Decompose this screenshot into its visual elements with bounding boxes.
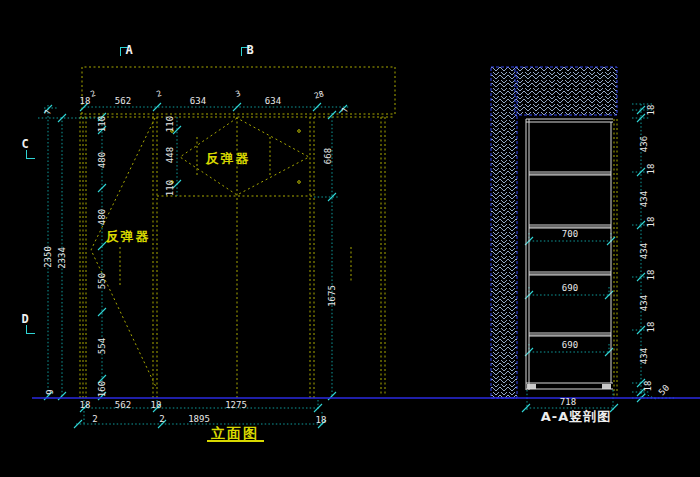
dim-label: 18: [151, 400, 162, 410]
dim-label: 18: [646, 105, 656, 116]
dim-label: 160: [97, 381, 107, 397]
cad-canvas: A B C D 18 2 562 2 634 3 634 28 7 7 2350…: [0, 0, 700, 477]
dim-label: 550: [97, 273, 107, 289]
dim-label: 18: [316, 415, 327, 425]
dim-label: 690: [562, 340, 578, 350]
dimension-lines: [38, 104, 674, 426]
dim-label: 1895: [188, 414, 210, 424]
dim-label: 18: [80, 96, 91, 106]
section-marker-a: A: [125, 43, 132, 57]
wall-hatch: [491, 67, 617, 398]
dim-label: 2334: [57, 247, 67, 269]
elevation-title: 立面图: [211, 425, 259, 443]
dim-label: 1275: [225, 400, 247, 410]
dim-label: 18: [646, 217, 656, 228]
dim-label: 448: [165, 147, 175, 163]
dim-label: 18: [80, 400, 91, 410]
dim-label: 2: [159, 414, 164, 424]
dim-label: 668: [323, 148, 333, 164]
elevation-frame-lines: [80, 67, 617, 441]
dim-label: 634: [265, 96, 281, 106]
dim-label: 480: [97, 152, 107, 168]
dim-label: 434: [639, 191, 649, 207]
section-marker-b: B: [246, 43, 253, 57]
dim-label: 18: [643, 381, 653, 392]
dim-label: 562: [115, 400, 131, 410]
dim-label: 2350: [43, 246, 53, 268]
rebounder-label: 反弹器: [106, 228, 151, 246]
section-title: A-A竖剖图: [541, 408, 612, 426]
dim-label: 110: [165, 116, 175, 132]
dim-label: 562: [115, 96, 131, 106]
dim-label: 18: [646, 322, 656, 333]
dim-label: 436: [639, 136, 649, 152]
rebounder-label: 反弹器: [206, 150, 251, 168]
dim-label: 2: [92, 414, 97, 424]
marker-bracket-c: [26, 150, 35, 159]
dim-label: 110: [97, 116, 107, 132]
dim-label: 18: [646, 270, 656, 281]
dim-label: 554: [97, 338, 107, 354]
section-marker-c: C: [21, 137, 28, 151]
marker-bracket-d: [26, 325, 35, 334]
dim-label: 1675: [327, 285, 337, 307]
dim-label: 480: [97, 209, 107, 225]
dim-label: 690: [562, 283, 578, 293]
section-marker-d: D: [21, 312, 28, 326]
dim-label: 434: [639, 295, 649, 311]
dim-label: 634: [190, 96, 206, 106]
dim-label: 18: [646, 164, 656, 175]
dim-label: 110: [165, 180, 175, 196]
dim-label: 434: [639, 348, 649, 364]
dim-label: 9: [45, 389, 55, 394]
dim-label: 434: [639, 243, 649, 259]
dim-label: 718: [560, 397, 576, 407]
tick-marks: [44, 103, 645, 428]
dim-label: 700: [562, 229, 578, 239]
